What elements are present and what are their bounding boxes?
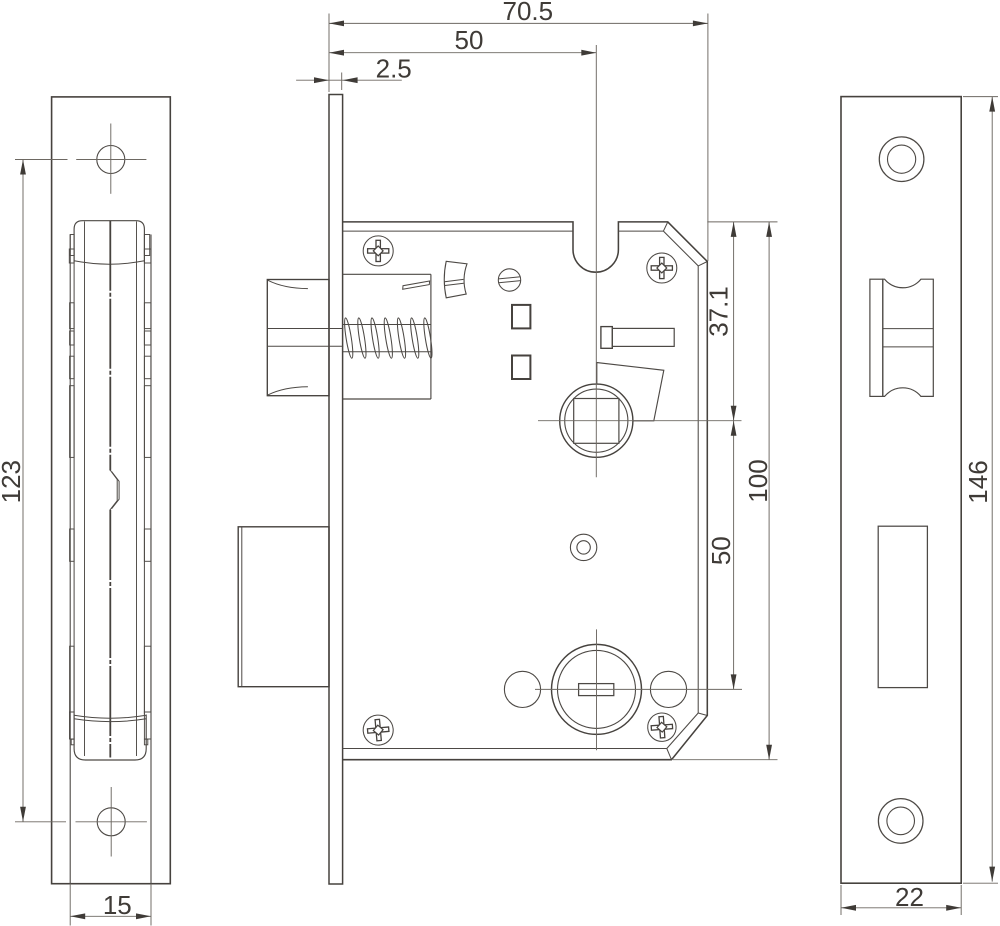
svg-text:2.5: 2.5 <box>376 54 412 84</box>
svg-text:22: 22 <box>895 882 924 912</box>
svg-text:123: 123 <box>0 460 26 503</box>
svg-text:15: 15 <box>103 890 132 920</box>
svg-text:50: 50 <box>706 536 736 565</box>
svg-text:70.5: 70.5 <box>502 0 553 26</box>
svg-text:50: 50 <box>455 25 484 55</box>
svg-text:146: 146 <box>963 460 993 503</box>
svg-text:100: 100 <box>743 459 773 502</box>
svg-text:37.1: 37.1 <box>704 286 734 337</box>
